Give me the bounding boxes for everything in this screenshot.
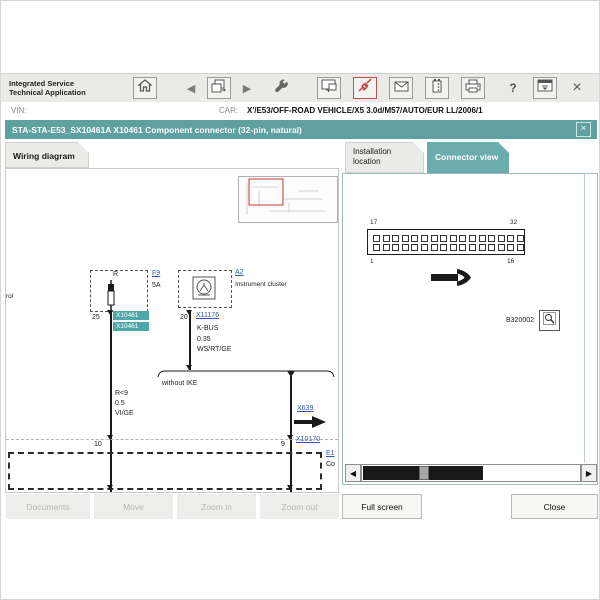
pin-square bbox=[479, 235, 486, 242]
display-settings-button[interactable] bbox=[317, 77, 341, 99]
clipped-edge-text: rol bbox=[6, 293, 13, 300]
full-screen-button[interactable]: Full screen bbox=[342, 494, 422, 519]
viewport-divider bbox=[584, 174, 585, 463]
pin-label-bottom-right: 16 bbox=[507, 258, 514, 265]
connector-highlight-tag[interactable]: X10461 bbox=[113, 311, 149, 320]
document-title-bar: STA-STA-E53_SX10461A X10461 Component co… bbox=[5, 120, 597, 139]
back-icon: ◀ bbox=[187, 82, 195, 95]
wire-label: 0.5 bbox=[115, 400, 125, 407]
print-button[interactable] bbox=[461, 77, 485, 99]
x639-arrow bbox=[294, 416, 328, 428]
mail-icon bbox=[394, 79, 409, 97]
pin-square bbox=[411, 235, 418, 242]
forward-icon: ▶ bbox=[243, 82, 251, 95]
cluster-pin-number: 20 bbox=[180, 314, 188, 321]
page-switch-button[interactable] bbox=[207, 77, 231, 99]
battery-icon bbox=[431, 78, 443, 98]
car-label: CAR: bbox=[219, 106, 238, 115]
fuse-symbol-label: R bbox=[113, 271, 118, 278]
pin-square bbox=[421, 235, 428, 242]
fuse-symbol bbox=[106, 280, 116, 310]
pin-square bbox=[488, 244, 495, 251]
document-close-button[interactable]: × bbox=[576, 122, 591, 137]
pin-square bbox=[450, 244, 457, 251]
wire-label: K-BUS bbox=[197, 325, 218, 332]
print-icon bbox=[465, 79, 481, 98]
forward-button[interactable]: ▶ bbox=[235, 77, 259, 99]
pin-square bbox=[450, 235, 457, 242]
close-app-button[interactable]: × bbox=[565, 77, 589, 99]
close-button[interactable]: Close bbox=[511, 494, 598, 519]
pin-square bbox=[373, 235, 380, 242]
car-value: X'/E53/OFF-ROAD VEHICLE/X5 3.0d/M57/AUTO… bbox=[247, 106, 483, 115]
wire-label: R<9 bbox=[115, 390, 128, 397]
wire-label: WS/RT/GE bbox=[197, 346, 231, 353]
pin-square bbox=[431, 244, 438, 251]
viewport-rectangle bbox=[249, 179, 283, 205]
branch-label: without IKE bbox=[162, 380, 197, 387]
pin-square bbox=[402, 244, 409, 251]
pin-label-bottom-left: 1 bbox=[370, 258, 374, 265]
move-button[interactable]: Move bbox=[94, 494, 173, 519]
zoom-out-button[interactable]: Zoom out bbox=[260, 494, 339, 519]
pin-square bbox=[383, 244, 390, 251]
connector-highlight-tag[interactable]: X10461 bbox=[113, 322, 149, 331]
connection-button[interactable] bbox=[353, 77, 377, 99]
connector-pin-grid bbox=[373, 235, 524, 252]
pin-square bbox=[488, 235, 495, 242]
wire-arrowhead bbox=[287, 485, 293, 490]
overview-map[interactable] bbox=[238, 176, 338, 223]
wrench-icon bbox=[273, 78, 289, 99]
connector-icon bbox=[357, 78, 373, 98]
edge-component-text: Co bbox=[326, 461, 335, 468]
minimize-window-icon bbox=[537, 79, 553, 97]
scrollbar-left-button[interactable]: ◀ bbox=[345, 464, 361, 482]
page-switch-icon bbox=[211, 79, 227, 98]
home-icon bbox=[138, 79, 152, 97]
document-title: STA-STA-E53_SX10461A X10461 Component co… bbox=[12, 125, 576, 135]
back-button[interactable]: ◀ bbox=[179, 77, 203, 99]
cluster-label: Instrument cluster bbox=[235, 281, 287, 288]
pin-label-top-right: 32 bbox=[510, 219, 517, 226]
minimize-window-button[interactable] bbox=[533, 77, 557, 99]
wire-label: VI/GE bbox=[115, 410, 134, 417]
pin-square bbox=[392, 244, 399, 251]
figure-id: B320002 bbox=[506, 317, 534, 324]
zoom-figure-button[interactable] bbox=[539, 310, 560, 331]
connector-view-canvas[interactable]: 17 32 1 16 B320002 ◀ ▶ bbox=[342, 173, 598, 485]
pin-square bbox=[459, 235, 466, 242]
connector-body bbox=[367, 229, 525, 255]
pin-square bbox=[421, 244, 428, 251]
service-functions-button[interactable] bbox=[269, 77, 293, 99]
x639-link[interactable]: X639 bbox=[297, 405, 313, 412]
scrollbar-right-button[interactable]: ▶ bbox=[581, 464, 597, 482]
vehicle-info-bar: VIN: CAR: X'/E53/OFF-ROAD VEHICLE/X5 3.0… bbox=[1, 102, 600, 118]
wire-arrowhead bbox=[107, 485, 113, 490]
help-button[interactable]: ? bbox=[501, 77, 525, 99]
edge-component-link[interactable]: E1 bbox=[326, 450, 335, 457]
magnifier-icon bbox=[543, 312, 556, 330]
pin-square bbox=[383, 235, 390, 242]
wire-arrowhead bbox=[107, 435, 113, 440]
wire-kbus bbox=[189, 312, 191, 370]
zoom-in-button[interactable]: Zoom in bbox=[177, 494, 256, 519]
main-toolbar: Integrated Service Technical Application… bbox=[1, 73, 600, 103]
ground-component-box bbox=[8, 452, 322, 490]
fuse-component-box bbox=[90, 270, 148, 312]
pin-square bbox=[392, 235, 399, 242]
pin-square bbox=[402, 235, 409, 242]
pin-square bbox=[469, 235, 476, 242]
pin-square bbox=[498, 235, 505, 242]
scrollbar-track[interactable] bbox=[361, 464, 581, 482]
wire-label: 0.35 bbox=[197, 336, 211, 343]
pin-square bbox=[469, 244, 476, 251]
cluster-link[interactable]: A2 bbox=[235, 269, 244, 276]
mail-button[interactable] bbox=[389, 77, 413, 99]
wire-arrowhead bbox=[107, 310, 113, 315]
home-button[interactable] bbox=[133, 77, 157, 99]
pin-label-top-left: 17 bbox=[370, 219, 377, 226]
close-icon: × bbox=[572, 79, 581, 97]
x10170-link[interactable]: X10170 bbox=[296, 436, 320, 443]
wire-arrowhead bbox=[287, 435, 293, 440]
pin-square bbox=[373, 244, 380, 251]
help-icon: ? bbox=[509, 81, 516, 95]
wiring-diagram-canvas[interactable]: rol R F9 5A 25 X10461 X10461 A2 Instrume… bbox=[5, 168, 339, 493]
pin-square bbox=[431, 235, 438, 242]
wire-arrowhead bbox=[186, 310, 192, 315]
tab-installation-location[interactable]: Installation location bbox=[345, 142, 424, 173]
pin-square bbox=[507, 244, 514, 251]
pin-square bbox=[440, 244, 447, 251]
cluster-connector-link[interactable]: X11176 bbox=[196, 312, 219, 319]
display-icon bbox=[321, 79, 337, 98]
vin-label: VIN: bbox=[11, 106, 27, 115]
fuse-rating: 5A bbox=[152, 282, 161, 289]
pin-square bbox=[498, 244, 505, 251]
pin-square bbox=[440, 235, 447, 242]
tab-wiring-diagram[interactable]: Wiring diagram bbox=[5, 142, 89, 168]
pin-square bbox=[507, 235, 514, 242]
app-title: Integrated Service Technical Application bbox=[9, 79, 127, 97]
fuse-pin-number: 25 bbox=[92, 314, 100, 321]
scrollbar-thumb[interactable] bbox=[419, 466, 429, 480]
plug-direction-symbol bbox=[431, 268, 473, 288]
pin-9: 9 bbox=[281, 441, 285, 448]
pin-square bbox=[411, 244, 418, 251]
battery-button[interactable] bbox=[425, 77, 449, 99]
instrument-cluster-icon bbox=[192, 276, 216, 300]
tab-connector-view[interactable]: Connector view bbox=[427, 142, 509, 173]
pin-square bbox=[517, 244, 524, 251]
documents-button[interactable]: Documents bbox=[6, 494, 90, 519]
fuse-link[interactable]: F9 bbox=[152, 270, 160, 277]
app-window: Integrated Service Technical Application… bbox=[0, 0, 600, 600]
pin-square bbox=[517, 235, 524, 242]
pin-square bbox=[459, 244, 466, 251]
pin-10: 10 bbox=[94, 441, 102, 448]
branch-bracket bbox=[157, 368, 337, 378]
pin-square bbox=[479, 244, 486, 251]
